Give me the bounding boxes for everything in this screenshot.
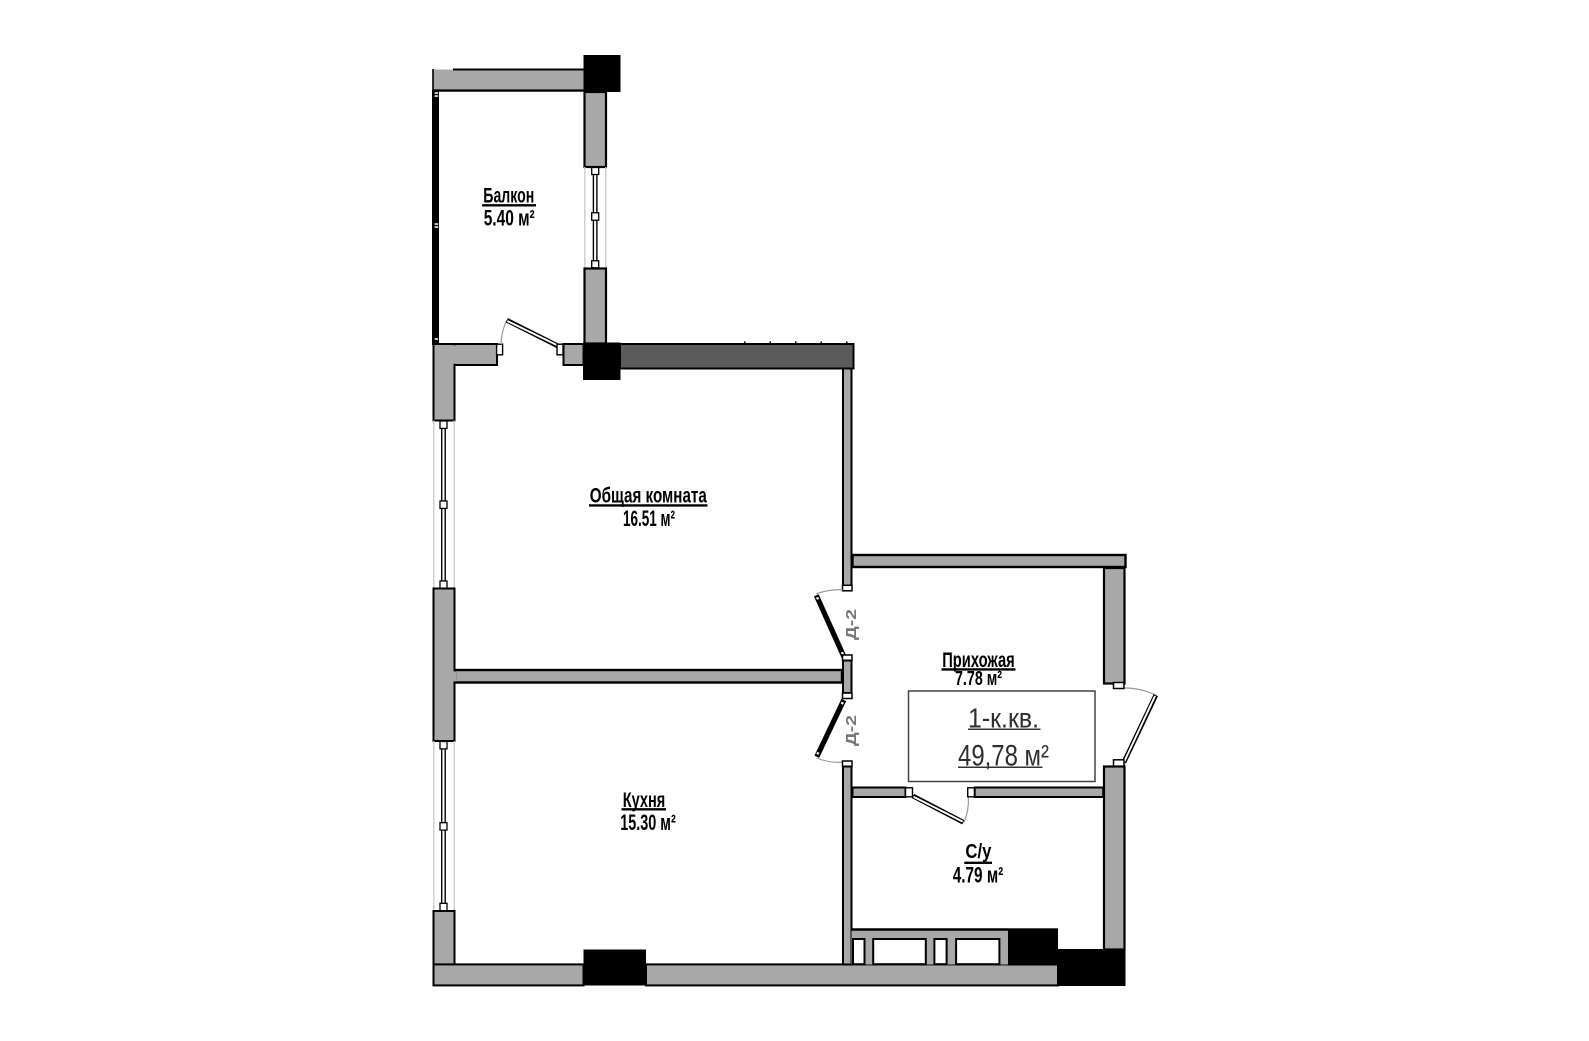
svg-text:С/у: С/у — [965, 841, 992, 863]
svg-text:15.30 м²: 15.30 м² — [620, 810, 676, 835]
svg-text:5.40 м²: 5.40 м² — [484, 205, 535, 230]
svg-text:Д-2: Д-2 — [843, 609, 860, 640]
svg-text:4.79 м²: 4.79 м² — [953, 863, 1004, 888]
svg-text:Балкон: Балкон — [483, 184, 534, 208]
svg-text:16.51 м²: 16.51 м² — [623, 506, 675, 531]
svg-text:Д-2: Д-2 — [843, 715, 860, 746]
svg-text:7.78 м²: 7.78 м² — [955, 667, 1002, 690]
svg-text:Общая комната: Общая комната — [590, 484, 708, 508]
